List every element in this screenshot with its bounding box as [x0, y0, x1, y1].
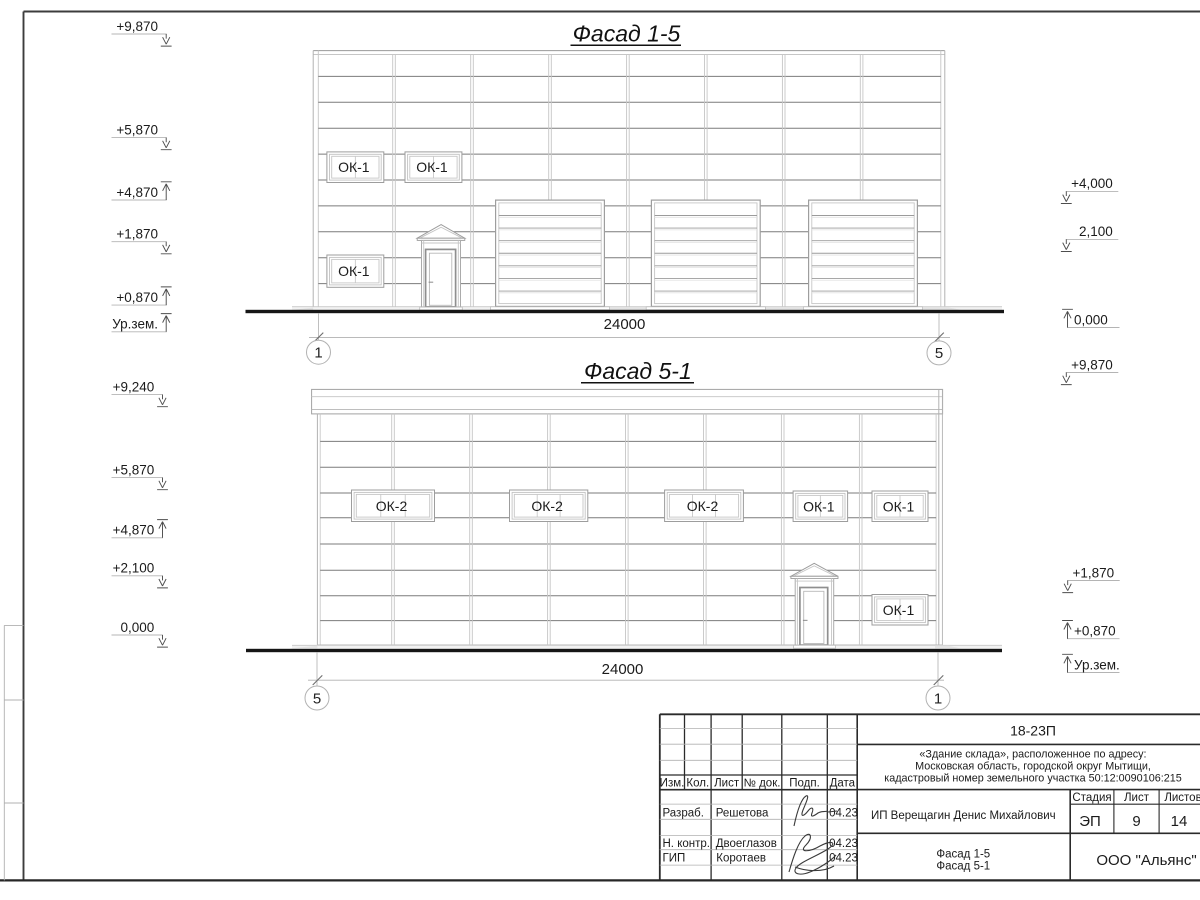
svg-text:Фасад 5-1: Фасад 5-1 — [584, 358, 692, 384]
svg-text:Изм.: Изм. — [660, 777, 685, 789]
svg-text:ОК-2: ОК-2 — [376, 498, 408, 514]
svg-text:ИП Верещагин Денис Михайлович: ИП Верещагин Денис Михайлович — [871, 810, 1056, 822]
svg-text:1: 1 — [934, 690, 942, 707]
svg-text:Разраб.: Разраб. — [663, 808, 704, 820]
svg-text:Московская область, городской: Московская область, городской округ Мыти… — [915, 760, 1151, 772]
svg-text:ОК-1: ОК-1 — [803, 498, 835, 514]
svg-text:Дата: Дата — [830, 777, 856, 789]
svg-text:№ док.: № док. — [744, 777, 781, 789]
svg-text:+9,870: +9,870 — [1071, 357, 1113, 372]
svg-text:9: 9 — [1132, 813, 1140, 830]
svg-text:ОК-2: ОК-2 — [687, 498, 719, 514]
svg-text:ОК-1: ОК-1 — [883, 498, 915, 514]
svg-text:14: 14 — [1171, 813, 1188, 830]
svg-text:+1,870: +1,870 — [116, 227, 158, 242]
svg-text:+9,240: +9,240 — [113, 379, 155, 394]
svg-text:+5,870: +5,870 — [113, 462, 155, 477]
svg-text:0,000: 0,000 — [121, 620, 155, 635]
svg-text:2,100: 2,100 — [1079, 224, 1113, 239]
svg-text:24000: 24000 — [604, 316, 646, 333]
svg-text:ГИП: ГИП — [663, 853, 686, 865]
svg-text:Н. контр.: Н. контр. — [663, 838, 710, 850]
svg-text:+4,870: +4,870 — [116, 185, 158, 200]
svg-text:1: 1 — [314, 345, 322, 362]
svg-text:+2,100: +2,100 — [113, 561, 155, 576]
svg-text:+4,000: +4,000 — [1071, 176, 1113, 191]
svg-text:ОК-2: ОК-2 — [531, 498, 563, 514]
svg-text:Лист: Лист — [714, 777, 740, 789]
svg-text:Фасад 5-1: Фасад 5-1 — [936, 861, 990, 873]
svg-text:ООО "Альянс": ООО "Альянс" — [1096, 852, 1196, 869]
svg-text:04.23: 04.23 — [829, 838, 858, 850]
svg-text:24000: 24000 — [602, 661, 644, 678]
svg-text:Ур.зем.: Ур.зем. — [112, 317, 158, 332]
svg-text:ОК-1: ОК-1 — [416, 159, 448, 175]
svg-text:5: 5 — [935, 345, 943, 362]
svg-text:Кол.: Кол. — [686, 777, 709, 789]
svg-text:+4,870: +4,870 — [113, 523, 155, 538]
svg-text:+9,870: +9,870 — [116, 19, 158, 34]
svg-text:Стадия: Стадия — [1072, 792, 1111, 804]
svg-text:ОК-1: ОК-1 — [883, 602, 915, 618]
svg-text:Решетова: Решетова — [716, 808, 769, 820]
svg-text:18-23П: 18-23П — [1010, 723, 1056, 739]
svg-text:+0,870: +0,870 — [1074, 624, 1116, 639]
svg-text:Коротаев: Коротаев — [716, 853, 766, 865]
svg-text:Фасад 1-5: Фасад 1-5 — [573, 21, 681, 47]
svg-text:04.23: 04.23 — [829, 808, 858, 820]
svg-text:+5,870: +5,870 — [116, 122, 158, 137]
svg-text:Листов: Листов — [1164, 792, 1200, 804]
svg-text:«Здание склада», расположенное: «Здание склада», расположенное по адресу… — [919, 749, 1146, 761]
svg-text:5: 5 — [313, 690, 321, 707]
svg-text:Ур.зем.: Ур.зем. — [1074, 657, 1120, 672]
svg-text:+0,870: +0,870 — [116, 290, 158, 305]
svg-text:04.23: 04.23 — [829, 853, 858, 865]
svg-text:Подп.: Подп. — [789, 777, 820, 789]
svg-text:ОК-1: ОК-1 — [338, 263, 370, 279]
svg-text:Фасад 1-5: Фасад 1-5 — [936, 849, 990, 861]
svg-text:Двоеглазов: Двоеглазов — [716, 838, 777, 850]
svg-text:ЭП: ЭП — [1079, 813, 1101, 830]
svg-text:0,000: 0,000 — [1074, 312, 1108, 327]
svg-text:+1,870: +1,870 — [1073, 565, 1115, 580]
svg-text:ОК-1: ОК-1 — [338, 159, 370, 175]
svg-text:кадастровый номер земельного у: кадастровый номер земельного участка 50:… — [884, 772, 1181, 784]
svg-text:Лист: Лист — [1124, 792, 1150, 804]
